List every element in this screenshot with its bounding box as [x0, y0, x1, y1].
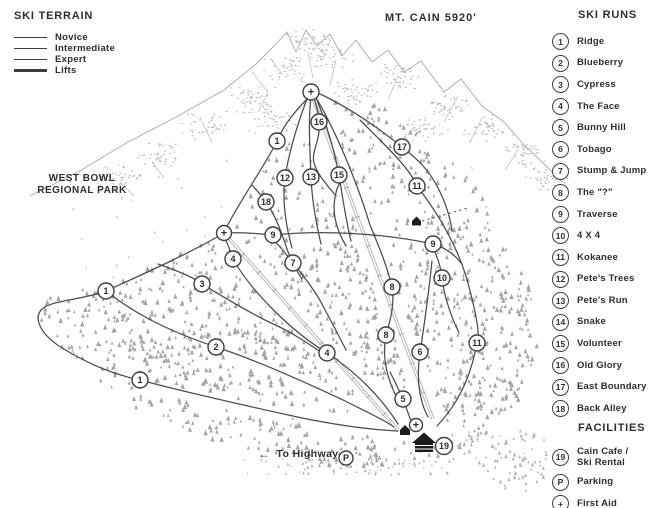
run-marker-19: 19 — [436, 438, 453, 455]
item-label: 4 X 4 — [577, 230, 600, 242]
svg-text:10: 10 — [437, 273, 447, 283]
svg-text:8: 8 — [389, 282, 394, 292]
svg-text:1: 1 — [137, 375, 142, 385]
list-item: +First Aid — [552, 495, 648, 508]
item-label: Ridge — [577, 36, 604, 48]
item-label: Back Alley — [577, 403, 627, 415]
item-number-circle: 8 — [552, 184, 569, 201]
trail-dashed-traverse — [422, 208, 468, 221]
terrain-line-sample — [14, 59, 47, 61]
svg-text:4: 4 — [230, 254, 235, 264]
list-item: 2Blueberry — [552, 55, 648, 72]
run-marker-12: 12 — [277, 170, 293, 186]
list-item: 17East Boundary — [552, 379, 648, 396]
trail-ridge-west-loop — [38, 233, 398, 431]
facilities-list: 19Cain Cafe / Ski RentalPParking+First A… — [552, 446, 648, 508]
svg-text:+: + — [413, 420, 419, 432]
ski-trail-map-page: +161171513121118+99471038181126415+19P S… — [0, 0, 650, 508]
item-label: Bunny Hill — [577, 122, 626, 134]
svg-text:16: 16 — [314, 117, 324, 127]
svg-text:19: 19 — [439, 441, 449, 451]
item-number-circle: 1 — [552, 33, 569, 50]
trail-ridge-upper — [224, 95, 311, 232]
ski-trails — [38, 93, 478, 431]
run-marker-10: 10 — [434, 270, 450, 286]
item-label: Parking — [577, 476, 613, 488]
svg-text:13: 13 — [306, 172, 316, 182]
west-bowl-line2: REGIONAL PARK — [32, 185, 132, 197]
run-marker-11: 11 — [469, 335, 485, 351]
item-label: Traverse — [577, 209, 618, 221]
item-number-circle: 17 — [552, 379, 569, 396]
run-marker-11: 11 — [409, 178, 425, 194]
svg-text:12: 12 — [280, 173, 290, 183]
run-marker-3: 3 — [194, 276, 210, 292]
terrain-row: Novice — [14, 32, 115, 43]
list-item: 8The "?" — [552, 184, 648, 201]
terrain-legend: SKI TERRAIN NoviceIntermediateExpertLift… — [14, 10, 115, 76]
terrain-label: Lifts — [55, 65, 77, 76]
run-marker-15: 15 — [331, 167, 347, 183]
svg-text:2: 2 — [213, 342, 218, 352]
item-number-circle: 7 — [552, 163, 569, 180]
run-marker-8: 8 — [378, 327, 394, 343]
svg-text:9: 9 — [430, 239, 435, 249]
run-marker-17: 17 — [394, 139, 410, 155]
item-label: Cain Cafe / Ski Rental — [577, 446, 628, 469]
run-marker-18: 18 — [258, 194, 274, 210]
terrain-line-sample — [14, 69, 47, 71]
item-label: Pete's Run — [577, 295, 628, 307]
list-item: 9Traverse — [552, 206, 648, 223]
run-marker-2: 2 — [208, 339, 224, 355]
list-item: 1Ridge — [552, 33, 648, 50]
run-marker-4: 4 — [319, 345, 335, 361]
parking-marker: P — [339, 451, 353, 465]
svg-text:15: 15 — [334, 170, 344, 180]
run-marker-4: 4 — [225, 251, 241, 267]
list-item: 4The Face — [552, 98, 648, 115]
map-title: MT. CAIN 5920' — [385, 12, 477, 24]
list-item: 5Bunny Hill — [552, 119, 648, 136]
svg-text:9: 9 — [270, 230, 275, 240]
svg-text:+: + — [221, 228, 227, 240]
lift-line — [223, 234, 397, 431]
terrain-label: Expert — [55, 54, 86, 65]
terrain-line-sample — [14, 48, 47, 50]
item-label: Cypress — [577, 79, 616, 91]
svg-text:1: 1 — [103, 286, 108, 296]
first-aid-marker: + — [217, 226, 232, 241]
list-item: 6Tobago — [552, 141, 648, 158]
lift-line — [310, 93, 432, 419]
item-number-circle: 9 — [552, 206, 569, 223]
item-label: Tobago — [577, 144, 612, 156]
svg-text:6: 6 — [417, 347, 422, 357]
item-number-circle: 13 — [552, 292, 569, 309]
list-item: 15Volunteer — [552, 335, 648, 352]
warming-hut-icon — [412, 217, 421, 226]
ski-runs-heading: SKI RUNS — [578, 9, 648, 21]
svg-text:17: 17 — [397, 142, 407, 152]
svg-text:5: 5 — [400, 394, 405, 404]
item-number-circle: 10 — [552, 227, 569, 244]
svg-text:4: 4 — [324, 348, 329, 358]
run-marker-1: 1 — [269, 133, 285, 149]
svg-text:11: 11 — [412, 181, 422, 191]
ski-runs-list: 1Ridge2Blueberry3Cypress4The Face5Bunny … — [552, 33, 648, 417]
list-item: 12Pete's Trees — [552, 271, 648, 288]
item-label: Volunteer — [577, 338, 622, 350]
item-label: First Aid — [577, 498, 617, 508]
list-item: 18Back Alley — [552, 400, 648, 417]
run-marker-1: 1 — [98, 283, 114, 299]
svg-text:P: P — [343, 453, 349, 463]
item-number-circle: 11 — [552, 249, 569, 266]
first-aid-marker: + — [303, 84, 319, 100]
run-marker-16: 16 — [311, 114, 327, 130]
svg-text:7: 7 — [290, 258, 295, 268]
terrain-line-sample — [14, 37, 47, 38]
base-hut-icon — [400, 425, 410, 435]
item-number-circle: 12 — [552, 271, 569, 288]
item-number-circle: 6 — [552, 141, 569, 158]
item-number-circle: 5 — [552, 119, 569, 136]
terrain-row: Lifts — [14, 65, 115, 76]
to-highway-label: ← To Highway — [258, 447, 339, 461]
item-number-circle: 19 — [552, 449, 569, 466]
first-aid-marker: + — [410, 419, 423, 432]
lodge-icon — [412, 433, 436, 453]
list-item: 16Old Glory — [552, 357, 648, 374]
list-item: 13Pete's Run — [552, 292, 648, 309]
west-bowl-line1: WEST BOWL — [32, 173, 132, 185]
item-label: East Boundary — [577, 381, 647, 393]
run-marker-1: 1 — [132, 372, 148, 388]
run-marker-8: 8 — [384, 279, 400, 295]
svg-text:+: + — [308, 87, 314, 99]
svg-text:3: 3 — [199, 279, 204, 289]
svg-text:11: 11 — [472, 338, 482, 348]
list-item: 14Snake — [552, 314, 648, 331]
item-number-circle: 3 — [552, 76, 569, 93]
list-item: PParking — [552, 474, 648, 491]
svg-text:8: 8 — [383, 330, 388, 340]
run-marker-6: 6 — [412, 344, 428, 360]
terrain-label: Intermediate — [55, 43, 115, 54]
terrain-label: Novice — [55, 32, 88, 43]
item-label: Stump & Jump — [577, 165, 646, 177]
item-label: Snake — [577, 316, 606, 328]
list-item: 19Cain Cafe / Ski Rental — [552, 446, 648, 469]
item-number-circle: 14 — [552, 314, 569, 331]
run-marker-9: 9 — [265, 227, 281, 243]
item-label: Old Glory — [577, 360, 622, 372]
run-marker-5: 5 — [395, 391, 411, 407]
west-bowl-label: WEST BOWL REGIONAL PARK — [32, 173, 132, 196]
left-arrow-icon: ← — [258, 447, 270, 461]
terrain-legend-heading: SKI TERRAIN — [14, 10, 115, 22]
list-item: 104 X 4 — [552, 227, 648, 244]
item-number-circle: 16 — [552, 357, 569, 374]
item-label: Blueberry — [577, 57, 623, 69]
item-number-circle: 4 — [552, 98, 569, 115]
rock-stipple-texture — [98, 29, 570, 191]
run-marker-13: 13 — [303, 169, 319, 185]
svg-text:1: 1 — [274, 136, 279, 146]
to-highway-text: To Highway — [276, 448, 338, 460]
item-number-circle: 18 — [552, 400, 569, 417]
item-label: The "?" — [577, 187, 613, 199]
item-number-circle: 15 — [552, 335, 569, 352]
run-marker-7: 7 — [285, 255, 301, 271]
list-item: 7Stump & Jump — [552, 163, 648, 180]
item-label: Pete's Trees — [577, 273, 634, 285]
terrain-row: Expert — [14, 54, 115, 65]
item-number-circle: P — [552, 474, 569, 491]
item-label: The Face — [577, 101, 620, 113]
item-number-circle: + — [552, 495, 569, 508]
run-marker-9: 9 — [425, 236, 441, 252]
svg-text:18: 18 — [261, 197, 271, 207]
item-label: Kokanee — [577, 252, 618, 264]
list-item: 11Kokanee — [552, 249, 648, 266]
item-number-circle: 2 — [552, 55, 569, 72]
trail-snake — [334, 181, 346, 246]
list-item: 3Cypress — [552, 76, 648, 93]
facilities-heading: FACILITIES — [578, 422, 648, 434]
terrain-row: Intermediate — [14, 43, 115, 54]
sidebar: SKI RUNS 1Ridge2Blueberry3Cypress4The Fa… — [552, 9, 648, 508]
